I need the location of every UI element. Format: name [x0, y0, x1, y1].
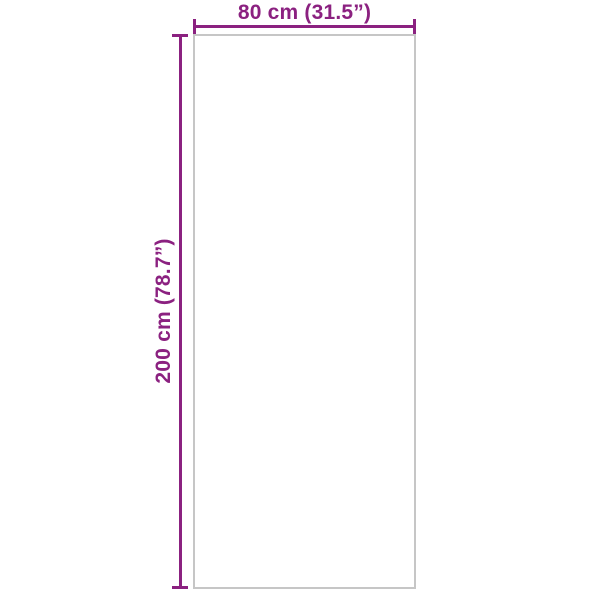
height-dimension-line: [179, 34, 182, 589]
height-dimension-bottom-tick: [172, 586, 188, 589]
width-dimension-label: 80 cm (31.5”): [193, 1, 416, 25]
product-outline-rectangle: [193, 34, 416, 589]
height-dimension-top-tick: [172, 34, 188, 37]
dimension-diagram: 80 cm (31.5”) 200 cm (78.7”): [0, 0, 600, 600]
height-dimension-label: 200 cm (78.7”): [152, 238, 176, 383]
width-dimension-line: [193, 25, 416, 28]
